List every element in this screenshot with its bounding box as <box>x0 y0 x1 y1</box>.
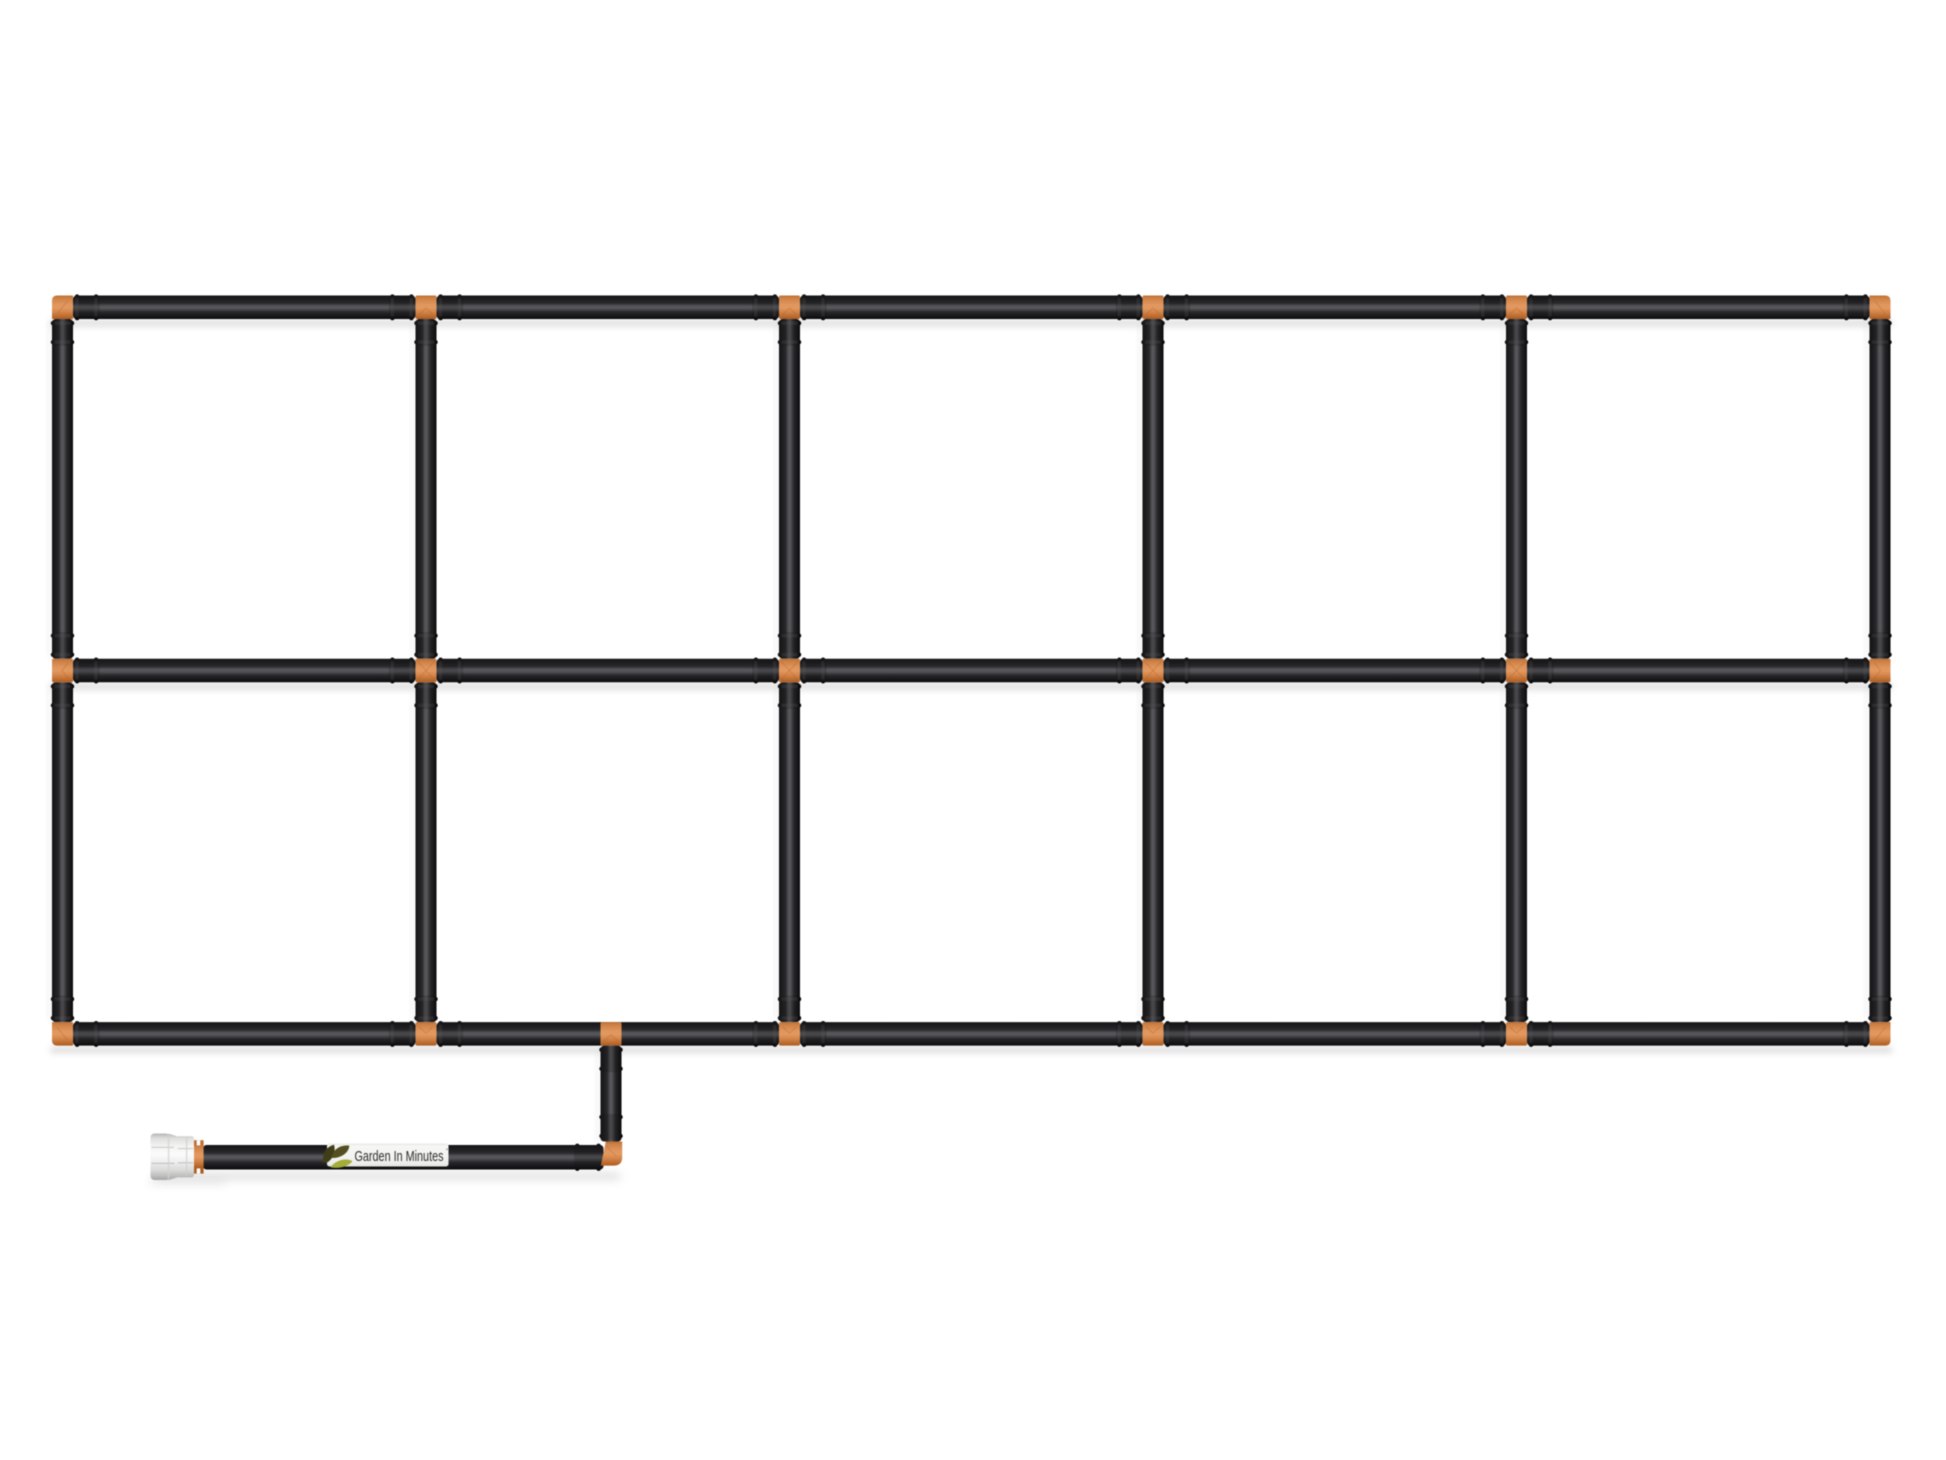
svg-text:Garden In Minutes: Garden In Minutes <box>355 1149 444 1165</box>
